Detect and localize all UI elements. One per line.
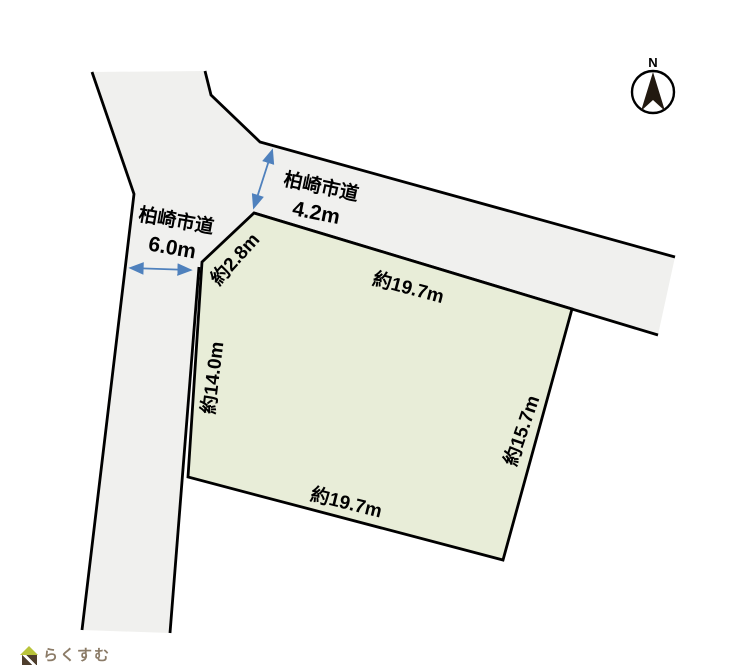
site-plan-canvas: 柏崎市道 6.0m 柏崎市道 4.2m 約2.8m 約19.7m 約14.0m … bbox=[0, 0, 729, 672]
compass-north-label: N bbox=[648, 55, 657, 70]
rakusumu-logo: らくすむ bbox=[20, 646, 111, 665]
land-plot-diagram: 柏崎市道 6.0m 柏崎市道 4.2m 約2.8m 約19.7m 約14.0m … bbox=[0, 0, 729, 672]
house-roof-shape bbox=[20, 646, 38, 655]
north-compass-icon: N bbox=[632, 55, 674, 113]
house-body-shape bbox=[22, 655, 37, 665]
house-logo-icon bbox=[20, 646, 38, 665]
logo-text: らくすむ bbox=[43, 646, 111, 665]
